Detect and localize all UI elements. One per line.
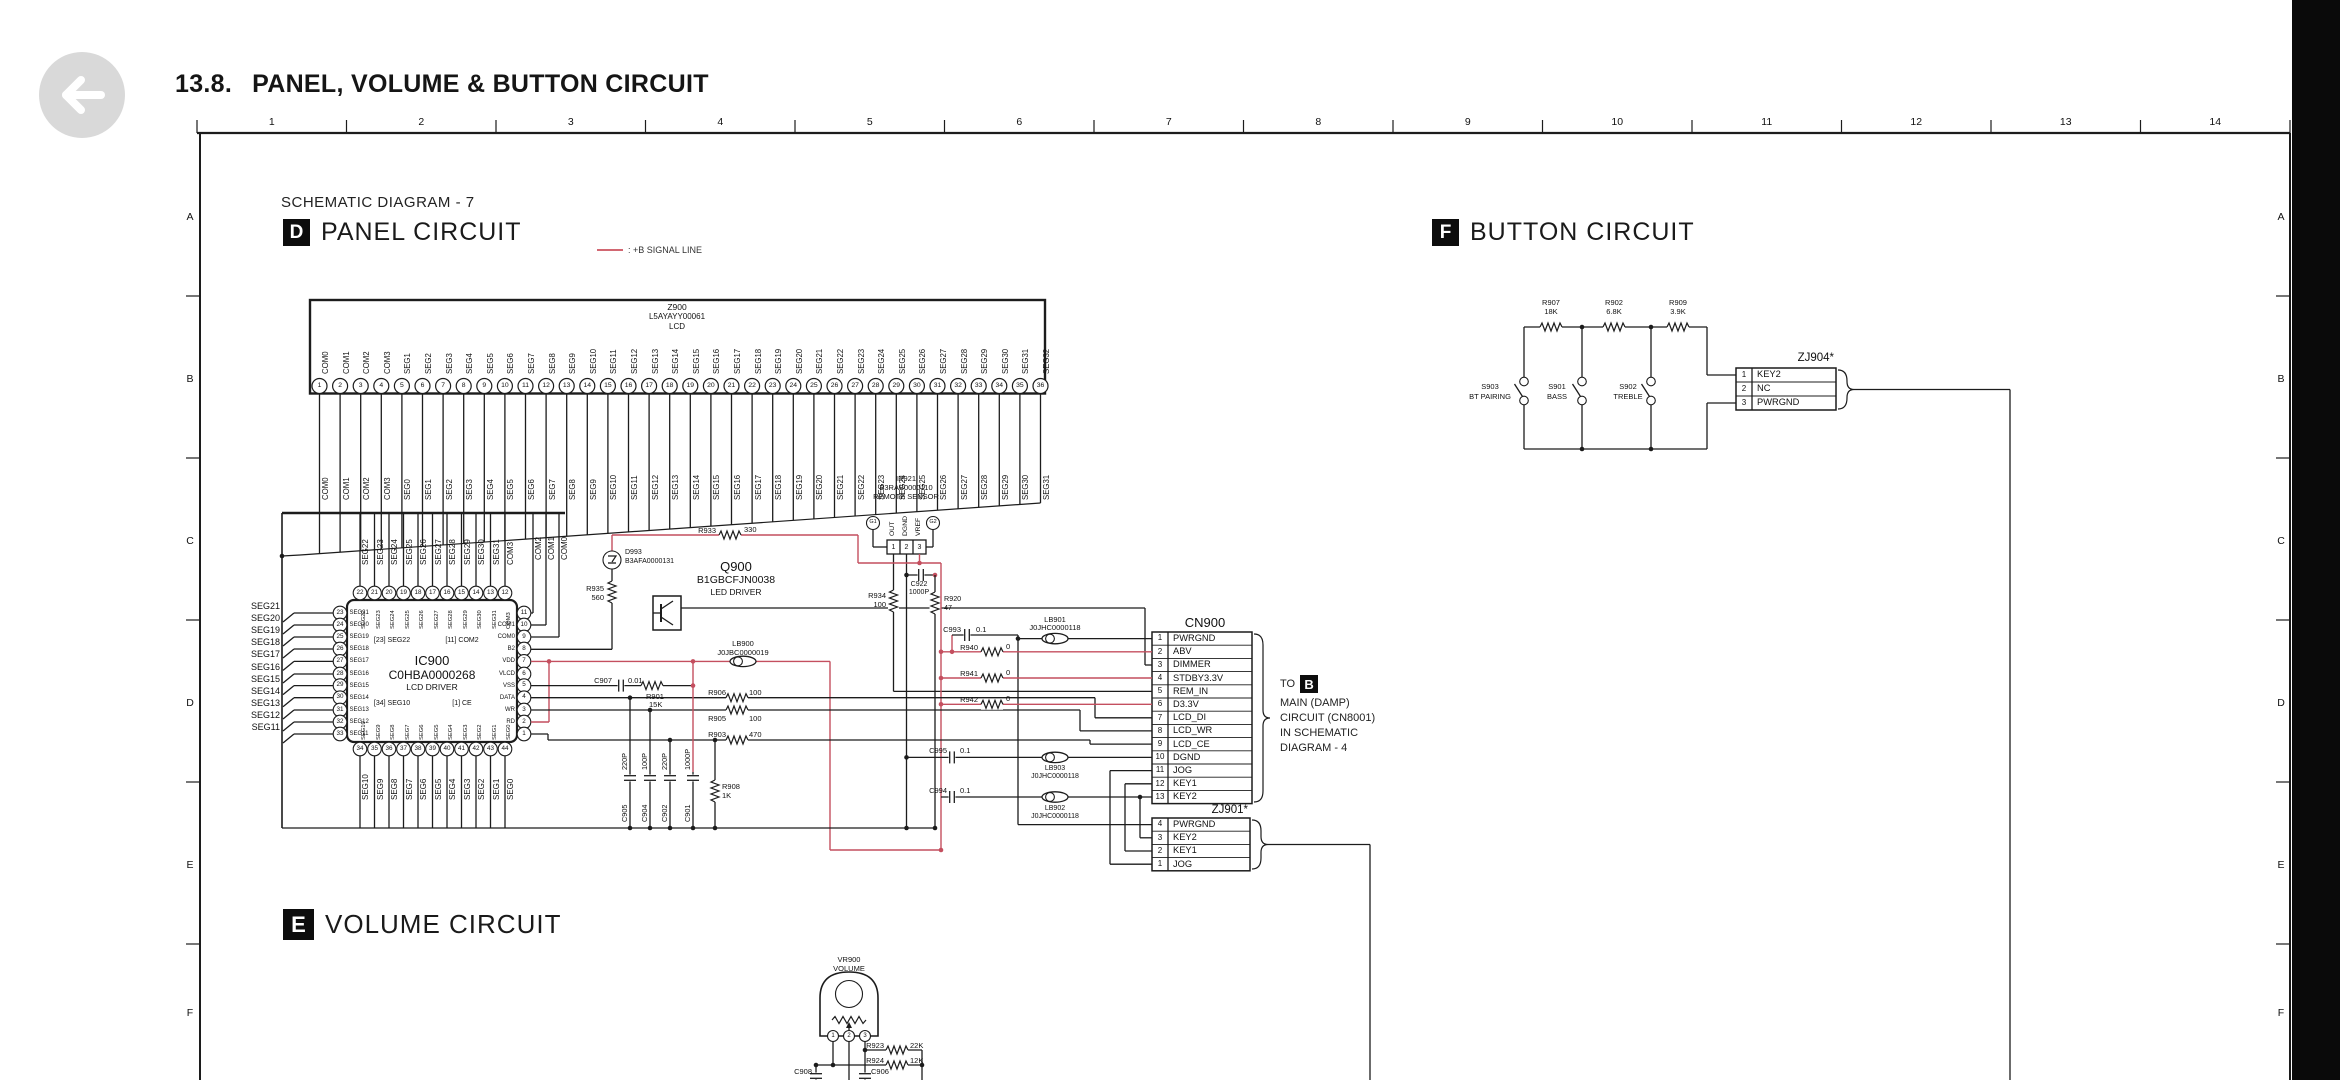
ic900-pin-name: WR: [505, 707, 515, 713]
zj901-pin-label: KEY1: [1173, 846, 1197, 855]
r934-val: 100: [873, 601, 886, 609]
ic900-com-net: COM1: [548, 537, 556, 560]
ic900-bottom-net: SEG1: [493, 779, 501, 800]
ic900-top-net: SEG30: [478, 539, 486, 565]
r940-val: 0: [1006, 643, 1010, 651]
lb901-ref: LB901: [1044, 616, 1066, 624]
cn900-title: CN900: [1185, 616, 1225, 629]
c906-ref: C906: [871, 1068, 889, 1076]
back-button[interactable]: [39, 52, 125, 138]
section-badge-e: E: [283, 909, 314, 940]
z900-pin-number: 35: [1016, 383, 1024, 390]
cn900-pin-label: LCD_WR: [1173, 726, 1212, 735]
lb900-part: J0JBC0000019: [717, 649, 768, 657]
vr900-name: VOLUME: [833, 965, 865, 973]
z900-pin-label: SEG17: [734, 349, 742, 374]
vr900-pin-number: 2: [847, 1033, 850, 1039]
z900-pin-label: SEG31: [1022, 349, 1030, 374]
ic900-pin-number: 13: [487, 590, 494, 596]
ic900-pin-number: 29: [336, 682, 343, 688]
z900-pin-number: 8: [462, 383, 466, 390]
ic900-pin-name: SEG4: [449, 725, 455, 740]
ic900-bottom-net: SEG3: [464, 779, 472, 800]
ic900-com-net: COM0: [561, 537, 569, 560]
r903-val: 470: [749, 731, 762, 739]
ruler-column-number: 14: [2209, 117, 2221, 128]
r933-ref: R933: [698, 527, 716, 535]
zj901-pin-number: 3: [1158, 834, 1162, 842]
z900-pin-label: SEG15: [693, 349, 701, 374]
ruler-row-letter: B: [2277, 374, 2284, 385]
page-edge-black-bar: [2292, 0, 2340, 1080]
r935-ref: R935: [586, 585, 604, 593]
cn900-pin-number: 6: [1158, 700, 1162, 708]
z900-pin-number: 14: [584, 383, 592, 390]
cap-value: 220P: [621, 753, 628, 770]
z900-net-label: SEG7: [549, 479, 557, 500]
zj904-pin-label: KEY2: [1757, 370, 1781, 379]
ic900-left-net: SEG13: [251, 699, 280, 708]
r923-ref: R923: [866, 1042, 884, 1050]
ic900-left-net: SEG18: [251, 638, 280, 647]
cap-value: 220P: [661, 753, 668, 770]
section-badge-f: F: [1432, 219, 1459, 246]
z900-pin-label: SEG28: [961, 349, 969, 374]
z900-net-label: COM1: [343, 477, 351, 500]
zj901-title: ZJ901*: [1212, 805, 1248, 817]
page-title-number: 13.8.: [175, 70, 232, 99]
z900-pin-number: 28: [872, 383, 880, 390]
z900-pin-number: 12: [542, 383, 550, 390]
z900-net-label: SEG31: [1043, 475, 1051, 500]
r906-ref: R906: [708, 689, 726, 697]
ruler-column-number: 6: [1016, 117, 1022, 128]
ic900-pin-number: 20: [385, 590, 392, 596]
z900-net-label: SEG3: [466, 479, 474, 500]
ic900-pin-name: VSS: [503, 683, 515, 689]
c908-ref: C908: [794, 1068, 812, 1076]
z900-pin-number: 31: [934, 383, 942, 390]
ic900-note: [1] CE: [452, 700, 471, 707]
ruler-column-number: 7: [1166, 117, 1172, 128]
ic900-bottom-net: SEG4: [449, 779, 457, 800]
z900-pin-label: SEG26: [919, 349, 927, 374]
ic900-pin-number: 5: [522, 682, 526, 688]
z900-pin-number: 32: [954, 383, 962, 390]
z900-net-label: SEG19: [796, 475, 804, 500]
lb900-ref: LB900: [732, 640, 754, 648]
ruler-column-number: 2: [418, 117, 424, 128]
ic900-note: [23] SEG22: [374, 637, 410, 644]
z900-net-label: SEG14: [693, 475, 701, 500]
ic900-top-net: SEG31: [493, 539, 501, 565]
c907-val: 0.01: [628, 677, 643, 685]
ruler-column-number: 1: [269, 117, 275, 128]
ruler-row-letter: B: [186, 374, 193, 385]
cn900-pin-label: DGND: [1173, 753, 1200, 762]
z900-pin-number: 9: [482, 383, 486, 390]
z900-pin-number: 10: [501, 383, 509, 390]
ic900-top-net: SEG27: [435, 539, 443, 565]
ic900-pin-number: 27: [336, 658, 343, 664]
note-badge-b: B: [1300, 675, 1318, 693]
ruler-row-letter: E: [2277, 860, 2284, 871]
r934-ref: R934: [868, 592, 886, 600]
lb902-part: J0JHC0000118: [1031, 813, 1079, 820]
ir921-ground: G1: [869, 520, 876, 526]
z900-net-label: SEG9: [590, 479, 598, 500]
ir921-pin-name: DGND: [903, 516, 910, 536]
r908-val: 1K: [722, 792, 731, 800]
ic900-bottom-net: SEG9: [377, 779, 385, 800]
z900-pin-number: 22: [748, 383, 756, 390]
r908-ref: R908: [722, 783, 740, 791]
ic900-left-net: SEG17: [251, 650, 280, 659]
zj904-pin-label: NC: [1757, 384, 1770, 393]
ic900-pin-name: SEG16: [350, 671, 369, 677]
button-switch-name: TREBLE: [1613, 393, 1642, 401]
z900-pin-label: SEG32: [1043, 349, 1051, 374]
cap-ref: C905: [621, 805, 628, 822]
cap-ref: C904: [641, 805, 648, 822]
z900-pin-number: 11: [522, 383, 529, 390]
ic900-com-net: COM2: [535, 537, 543, 560]
z900-pin-label: SEG25: [899, 349, 907, 374]
z900-net-label: SEG29: [1002, 475, 1010, 500]
cn900-destination-note: TO B MAIN (DAMP) CIRCUIT (CN8001) IN SCH…: [1280, 674, 1375, 754]
c994-ref: C994: [929, 787, 947, 795]
z900-net-label: SEG11: [631, 475, 639, 500]
zj901-pin-label: KEY2: [1173, 833, 1197, 842]
ic900-pin-number: 2: [522, 719, 526, 725]
z900-pin-number: 29: [893, 383, 901, 390]
z900-pin-number: 6: [421, 383, 425, 390]
cn900-pin-number: 9: [1158, 740, 1162, 748]
z900-net-label: SEG20: [816, 475, 824, 500]
ic900-note: [11] COM2: [445, 637, 478, 644]
ic900-pin-number: 12: [501, 590, 508, 596]
ic900-pin-number: 39: [429, 746, 436, 752]
zj904-title: ZJ904*: [1798, 353, 1834, 365]
ruler-column-number: 4: [717, 117, 723, 128]
section-title-button: BUTTON CIRCUIT: [1470, 218, 1695, 247]
r901-val: 15K: [649, 701, 662, 709]
ic900-pin-name: VDD: [502, 658, 515, 664]
button-switch-name: BT PAIRING: [1469, 393, 1511, 401]
z900-pin-label: COM2: [363, 351, 371, 374]
ruler-column-number: 8: [1315, 117, 1321, 128]
z900-pin-number: 25: [810, 383, 818, 390]
ic900-pin-name: SEG0: [507, 725, 513, 740]
button-resistor-val: 6.8K: [1606, 308, 1621, 316]
r905-val: 100: [749, 715, 762, 723]
section-volume-circuit: E VOLUME CIRCUIT: [283, 909, 561, 940]
ic900-pin-name: SEG24: [391, 610, 397, 629]
ir921-pin-name: VREF: [916, 518, 923, 536]
ic900-pin-number: 8: [522, 646, 526, 652]
ruler-column-number: 13: [2060, 117, 2072, 128]
note-prefix: TO: [1280, 678, 1295, 690]
z900-pin-number: 3: [359, 383, 363, 390]
z900-net-label: COM3: [384, 477, 392, 500]
z900-pin-label: SEG19: [775, 349, 783, 374]
cn900-pin-number: 8: [1158, 727, 1162, 735]
ruler-row-letter: C: [186, 536, 194, 547]
zj904-pin-number: 2: [1742, 385, 1746, 393]
z900-pin-label: COM3: [384, 351, 392, 374]
ic900-pin-number: 3: [522, 707, 526, 713]
lb902-ref: LB902: [1045, 805, 1065, 812]
ic900-pin-name: SEG15: [350, 683, 369, 689]
r920-val: 47: [944, 604, 952, 611]
ic900-pin-name: SEG9: [377, 725, 383, 740]
z900-net-label: COM0: [322, 477, 330, 500]
z900-pin-number: 1: [318, 383, 322, 390]
ic900-pin-number: 11: [521, 610, 528, 616]
ic900-pin-name: SEG23: [377, 610, 383, 629]
c907-ref: C907: [594, 677, 612, 685]
z900-pin-label: SEG8: [549, 353, 557, 374]
ic900-pin-number: 34: [356, 746, 363, 752]
lb901-part: J0JHC0000118: [1029, 624, 1080, 632]
r935-val: 560: [591, 594, 604, 602]
ic900-top-net: COM3: [507, 542, 515, 565]
c993-ref: C993: [943, 626, 961, 634]
ruler-column-number: 12: [1910, 117, 1922, 128]
schematic-diagram-label: SCHEMATIC DIAGRAM - 7: [281, 194, 475, 211]
ic900-pin-number: 15: [458, 590, 465, 596]
button-resistor-ref: R907: [1542, 299, 1560, 307]
ic900-pin-name: SEG8: [391, 725, 397, 740]
c994-val: 0.1: [960, 787, 970, 795]
ic900-pin-number: 7: [522, 658, 526, 664]
ic900-pin-name: VLCD: [499, 671, 515, 677]
z900-pin-number: 16: [625, 383, 633, 390]
button-resistor-ref: R909: [1669, 299, 1687, 307]
ic900-top-net: SEG29: [464, 539, 472, 565]
schematic-page: 13.8. PANEL, VOLUME & BUTTON CIRCUIT SCH…: [0, 0, 2340, 1080]
z900-net-label: SEG27: [961, 475, 969, 500]
button-resistor-val: 3.9K: [1670, 308, 1685, 316]
ic900-left-net: SEG15: [251, 675, 280, 684]
q900-ref: Q900: [720, 560, 752, 573]
ic900-pin-name: SEG30: [478, 610, 484, 629]
ic900-pin-number: 10: [520, 622, 527, 628]
z900-pin-label: SEG9: [569, 353, 577, 374]
z900-pin-number: 23: [769, 383, 777, 390]
r941-val: 0: [1006, 669, 1010, 677]
section-title-volume: VOLUME CIRCUIT: [325, 909, 561, 940]
ic900-pin-name: SEG2: [478, 725, 484, 740]
button-switch-ref: S901: [1548, 383, 1566, 391]
button-resistor-val: 18K: [1544, 308, 1557, 316]
z900-pin-label: SEG24: [878, 349, 886, 374]
ic900-top-net: SEG28: [449, 539, 457, 565]
z900-net-label: COM2: [363, 477, 371, 500]
cn900-pin-label: KEY1: [1173, 779, 1197, 788]
ic900-pin-number: 24: [336, 622, 343, 628]
cn900-pin-label: REM_IN: [1173, 687, 1208, 696]
ic900-pin-number: 31: [336, 707, 343, 713]
z900-pin-number: 5: [400, 383, 404, 390]
ic900-pin-name: SEG5: [435, 725, 441, 740]
ic900-left-net: SEG16: [251, 663, 280, 672]
ic900-note: [34] SEG10: [374, 700, 410, 707]
ic900-pin-number: 4: [522, 694, 526, 700]
ic900-pin-name: SEG13: [350, 707, 369, 713]
ir921-pin-number: 2: [905, 544, 909, 551]
cn900-pin-number: 13: [1156, 793, 1165, 801]
ruler-column-number: 11: [1761, 117, 1772, 128]
z900-pin-label: SEG2: [425, 353, 433, 374]
z900-net-label: SEG15: [713, 475, 721, 500]
ic900-pin-number: 30: [336, 694, 343, 700]
r942-ref: R942: [960, 696, 978, 704]
section-button-circuit: F BUTTON CIRCUIT: [1432, 218, 1695, 247]
r906-val: 100: [749, 689, 762, 697]
lb903-ref: LB903: [1045, 765, 1065, 772]
ic900-left-net: SEG14: [251, 687, 280, 696]
r923-val: 22K: [910, 1042, 923, 1050]
cap-ref: C901: [684, 805, 691, 822]
ruler-row-letter: D: [186, 698, 194, 709]
z900-pin-label: SEG5: [487, 353, 495, 374]
ic900-bottom-net: SEG10: [362, 774, 370, 800]
ic900-pin-name: SEG6: [420, 725, 426, 740]
z900-pin-number: 7: [441, 383, 445, 390]
note-line: DIAGRAM - 4: [1280, 742, 1375, 754]
z900-ref: Z900: [667, 303, 686, 312]
cn900-pin-label: JOG: [1173, 766, 1192, 775]
z900-pin-label: COM1: [343, 351, 351, 374]
ruler-row-letter: F: [2278, 1008, 2284, 1019]
vr900-pin-number: 3: [863, 1033, 866, 1039]
c922-val: 1000P: [909, 589, 929, 596]
r942-val: 0: [1006, 695, 1010, 703]
c993-val: 0.1: [976, 626, 986, 634]
c922-ref: C922: [911, 581, 928, 588]
page-title-text: PANEL, VOLUME & BUTTON CIRCUIT: [252, 70, 709, 99]
zj901-pin-number: 1: [1158, 860, 1162, 868]
ic900-left-net: SEG21: [251, 602, 280, 611]
ic900-left-net: SEG12: [251, 711, 280, 720]
ir921-part: B3RAB0000110: [879, 484, 932, 492]
cap-value: 1000P: [684, 749, 691, 770]
z900-pin-label: SEG4: [466, 353, 474, 374]
z900-net-label: SEG5: [507, 479, 515, 500]
ir921-ground: G2: [929, 520, 936, 526]
ir921-pin-number: 3: [918, 544, 922, 551]
legend-label: : +B SIGNAL LINE: [628, 245, 702, 255]
ic900-pin-number: 18: [414, 590, 421, 596]
cn900-pin-label: STDBY3.3V: [1173, 674, 1223, 683]
cn900-pin-number: 5: [1158, 687, 1162, 695]
z900-pin-label: SEG27: [940, 349, 948, 374]
ic900-pin-name: SEG26: [420, 610, 426, 629]
note-line: CIRCUIT (CN8001): [1280, 712, 1375, 724]
ic900-pin-name: SEG28: [449, 610, 455, 629]
lb903-part: J0JHC0000118: [1031, 773, 1079, 780]
zj901-pin-number: 4: [1158, 820, 1162, 828]
ic900-pin-number: 43: [487, 746, 494, 752]
z900-pin-number: 15: [604, 383, 612, 390]
ic900-pin-number: 44: [501, 746, 508, 752]
button-switch-ref: S903: [1481, 383, 1499, 391]
ic900-pin-name: SEG19: [350, 634, 369, 640]
ir921-ref: IR921: [896, 475, 916, 483]
ic900-pin-number: 16: [443, 590, 450, 596]
z900-pin-number: 21: [728, 383, 736, 390]
ic900-top-net: SEG23: [377, 539, 385, 565]
ic900-pin-number: 42: [472, 746, 479, 752]
ic900-bottom-net: SEG5: [435, 779, 443, 800]
cn900-pin-number: 10: [1156, 753, 1165, 761]
zj904-pin-label: PWRGND: [1757, 398, 1799, 407]
r940-ref: R940: [960, 644, 978, 652]
r903-ref: R903: [708, 731, 726, 739]
ruler-row-letter: A: [186, 212, 193, 223]
ic900-pin-name: SEG18: [350, 646, 369, 652]
q900-name: LED DRIVER: [710, 588, 761, 597]
z900-net-label: SEG26: [940, 475, 948, 500]
ic900-pin-number: 28: [336, 671, 343, 677]
z900-pin-label: SEG6: [507, 353, 515, 374]
ic900-pin-number: 37: [400, 746, 407, 752]
ir921-name: REMOTE SENSOR: [873, 493, 939, 501]
cn900-pin-number: 12: [1156, 780, 1165, 788]
cap-ref: C902: [661, 805, 668, 822]
ic900-pin-number: 41: [458, 746, 465, 752]
z900-pin-number: 13: [563, 383, 571, 390]
ic900-pin-number: 33: [336, 731, 343, 737]
ic900-name: LCD DRIVER: [406, 683, 457, 692]
z900-pin-number: 18: [666, 383, 674, 390]
z900-pin-label: SEG29: [981, 349, 989, 374]
z900-pin-label: SEG16: [713, 349, 721, 374]
z900-net-label: SEG30: [1022, 475, 1030, 500]
button-switch-ref: S902: [1619, 383, 1637, 391]
z900-net-label: SEG16: [734, 475, 742, 500]
ruler-column-number: 10: [1611, 117, 1623, 128]
ic900-pin-number: 19: [400, 590, 407, 596]
cn900-pin-label: LCD_CE: [1173, 740, 1210, 749]
ic900-pin-number: 23: [336, 610, 343, 616]
cn900-pin-label: PWRGND: [1173, 634, 1215, 643]
ic900-pin-name: SEG22: [362, 610, 368, 629]
note-line: MAIN (DAMP): [1280, 697, 1375, 709]
ic900-pin-number: 14: [472, 590, 479, 596]
ic900-pin-name: SEG27: [435, 610, 441, 629]
section-title-panel: PANEL CIRCUIT: [321, 218, 522, 247]
cn900-pin-label: ABV: [1173, 647, 1192, 656]
ic900-ref: IC900: [415, 654, 450, 667]
ic900-pin-number: 40: [443, 746, 450, 752]
ruler-row-letter: D: [2277, 698, 2285, 709]
cn900-pin-number: 2: [1158, 648, 1162, 656]
z900-net-label: SEG10: [610, 475, 618, 500]
ic900-bottom-net: SEG6: [420, 779, 428, 800]
ic900-pin-number: 17: [429, 590, 436, 596]
r933-val: 330: [744, 526, 757, 534]
z900-net-label: SEG22: [858, 475, 866, 500]
ic900-top-net: SEG26: [420, 539, 428, 565]
ic900-pin-number: 21: [371, 590, 378, 596]
page-title: 13.8. PANEL, VOLUME & BUTTON CIRCUIT: [175, 70, 709, 99]
zj901-pin-label: PWRGND: [1173, 820, 1215, 829]
c995-val: 0.1: [960, 747, 970, 755]
z900-net-label: SEG12: [652, 475, 660, 500]
r905-ref: R905: [708, 715, 726, 723]
